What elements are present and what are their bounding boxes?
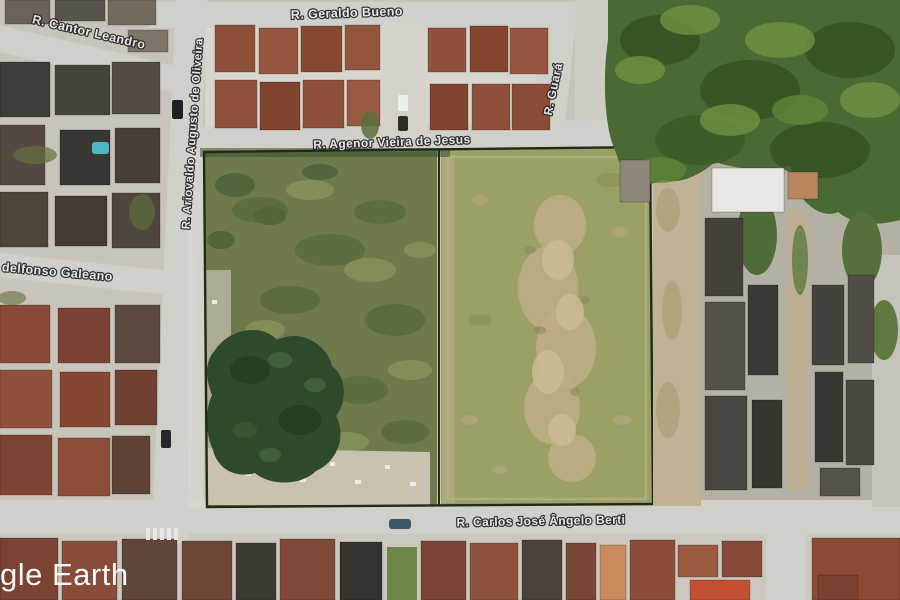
street-label-carlos-berti: R. Carlos José Ângelo Berti xyxy=(456,512,625,530)
car xyxy=(161,430,171,448)
green-vacant-plot xyxy=(387,547,417,600)
alley-right-edge xyxy=(872,255,900,507)
street-bottom-right-vertical xyxy=(766,502,806,600)
car xyxy=(172,100,183,119)
satellite-map-canvas[interactable]: R. Geraldo Bueno R. Cantor Leandro R. Ar… xyxy=(0,0,900,600)
dirt-alley xyxy=(653,150,701,506)
swimming-pool xyxy=(92,142,109,154)
left-houses xyxy=(0,291,160,496)
car xyxy=(398,95,408,111)
google-earth-viewport: R. Geraldo Bueno R. Cantor Leandro R. Ar… xyxy=(0,0,900,600)
google-earth-watermark: gle Earth xyxy=(0,557,129,592)
car xyxy=(389,519,411,529)
white-roof-building xyxy=(712,168,784,212)
vacant-lot xyxy=(200,147,653,507)
car xyxy=(398,116,408,131)
